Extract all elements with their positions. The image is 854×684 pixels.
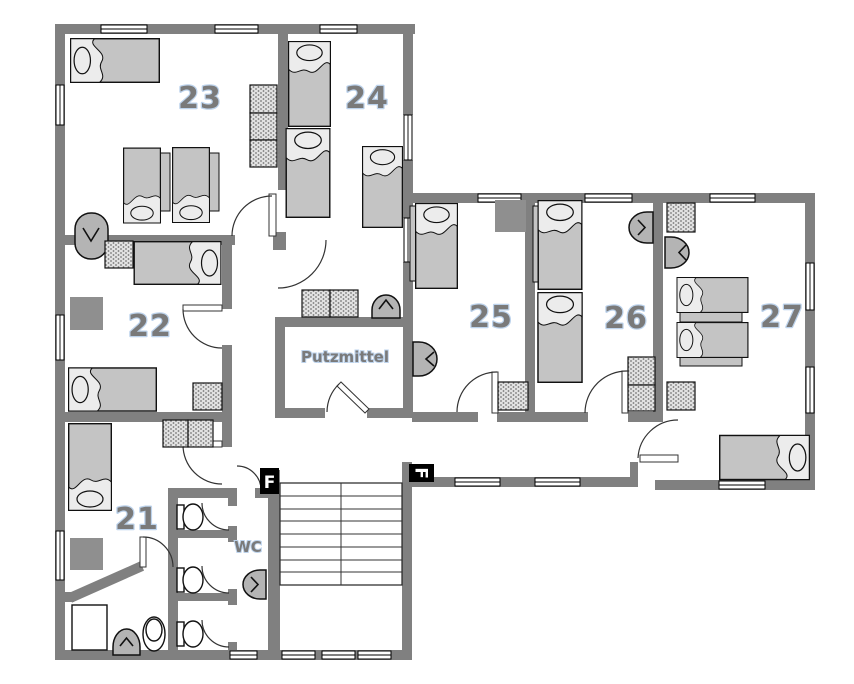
bed	[173, 148, 210, 223]
wall-segment	[228, 589, 237, 605]
wardrobe-icon	[628, 357, 655, 411]
table	[495, 200, 526, 232]
sink-icon	[113, 629, 140, 655]
room-27: 27	[665, 203, 809, 480]
bed-underlay	[209, 153, 219, 211]
wall-segment	[178, 593, 230, 601]
sink-icon	[243, 570, 266, 599]
wall-segment	[222, 412, 232, 447]
sink-icon	[75, 213, 108, 259]
bed	[677, 278, 748, 313]
window	[585, 194, 632, 202]
window	[215, 25, 258, 33]
room-label: 25	[469, 300, 513, 335]
wardrobe-icon	[105, 241, 133, 268]
stairwell	[280, 483, 402, 585]
toilet-icon	[177, 567, 203, 593]
table	[70, 538, 103, 570]
door-room22	[183, 305, 222, 348]
toilet-icon	[177, 504, 203, 530]
wardrobe-icon	[250, 85, 277, 167]
window	[56, 315, 64, 360]
room-label: 24	[345, 81, 389, 116]
bed	[69, 424, 112, 511]
stall-door	[202, 620, 229, 647]
room-23: 23	[71, 39, 277, 259]
room-label: 26	[604, 301, 648, 336]
window	[322, 651, 355, 659]
wall-segment	[268, 470, 280, 660]
bed	[363, 147, 403, 228]
room-label: 21	[115, 502, 159, 537]
wall-segment	[275, 408, 325, 418]
bed	[69, 368, 157, 411]
bed-underlay	[160, 153, 170, 211]
door-wc-entry	[237, 466, 261, 490]
wall-segment	[367, 408, 403, 418]
floor-plan: 23 24 Putzmittel 22	[0, 0, 854, 680]
door-room27	[638, 420, 678, 462]
room-label: 22	[128, 309, 172, 344]
wall-segment	[222, 245, 232, 309]
door-room26	[585, 371, 628, 413]
room-label: 27	[760, 300, 804, 335]
bed	[134, 242, 221, 285]
wall-diagonal	[70, 566, 142, 598]
wc-area: WC	[177, 503, 266, 647]
stall-door	[202, 503, 229, 530]
door-putzmittel	[327, 382, 369, 413]
window	[806, 263, 814, 310]
wardrobe-icon	[667, 203, 695, 232]
sink-icon	[629, 212, 653, 243]
wall-segment	[402, 462, 412, 660]
window	[56, 85, 64, 125]
wardrobe-icon	[498, 382, 528, 410]
wall-segment	[275, 317, 285, 418]
door-room25	[457, 372, 498, 413]
window	[806, 367, 814, 413]
window	[101, 25, 147, 33]
wardrobe-icon	[302, 290, 358, 317]
window	[56, 531, 64, 580]
wall-segment	[630, 462, 638, 487]
fire-extinguisher-icon: F	[260, 468, 279, 494]
window	[282, 651, 315, 659]
room-24: 24	[286, 42, 402, 318]
window	[710, 194, 755, 202]
sink-icon	[413, 342, 437, 376]
stall-door	[202, 566, 229, 593]
bed	[124, 148, 161, 223]
room-26: 26	[533, 201, 655, 411]
window	[535, 478, 580, 486]
wall-segment	[628, 412, 663, 422]
bed	[286, 129, 330, 218]
window	[320, 25, 357, 33]
bed	[720, 435, 810, 479]
wall-segment	[403, 262, 413, 418]
toilet-icon	[177, 621, 203, 647]
bed	[538, 201, 582, 290]
svg-text:F: F	[411, 467, 431, 479]
room-25: 25	[410, 200, 528, 410]
bed	[416, 204, 458, 289]
wall-segment	[412, 477, 630, 487]
floor-plan-page: 23 24 Putzmittel 22	[0, 0, 854, 680]
wall-segment	[228, 498, 237, 506]
wall-segment	[178, 530, 230, 538]
bed	[538, 293, 582, 383]
room-putzmittel: Putzmittel	[301, 348, 389, 366]
svg-text:F: F	[264, 473, 276, 493]
door-room23	[232, 194, 276, 236]
wall-segment	[497, 412, 588, 422]
putzmittel-label: Putzmittel	[301, 348, 389, 366]
window	[404, 115, 412, 160]
bed	[289, 42, 331, 127]
room-22: 22	[69, 241, 222, 411]
window	[455, 478, 500, 486]
window	[719, 481, 765, 489]
wc-label: WC	[234, 538, 262, 556]
toilet-icon	[143, 617, 165, 651]
sink-icon	[665, 237, 689, 268]
wardrobe-icon	[163, 420, 213, 447]
wall-segment	[403, 24, 413, 115]
window	[230, 651, 257, 659]
wardrobe-icon	[193, 383, 222, 410]
sink-icon	[372, 295, 400, 318]
wardrobe-icon	[667, 382, 695, 410]
wall-segment	[412, 412, 478, 422]
room-label: 23	[178, 81, 222, 116]
fire-extinguisher-icon: F	[409, 464, 434, 482]
wall-segment	[222, 345, 232, 412]
window	[358, 651, 391, 659]
bed	[677, 323, 748, 358]
table	[70, 297, 103, 330]
bed	[71, 39, 160, 83]
wall-segment	[168, 488, 237, 498]
shower-tray	[72, 605, 107, 650]
